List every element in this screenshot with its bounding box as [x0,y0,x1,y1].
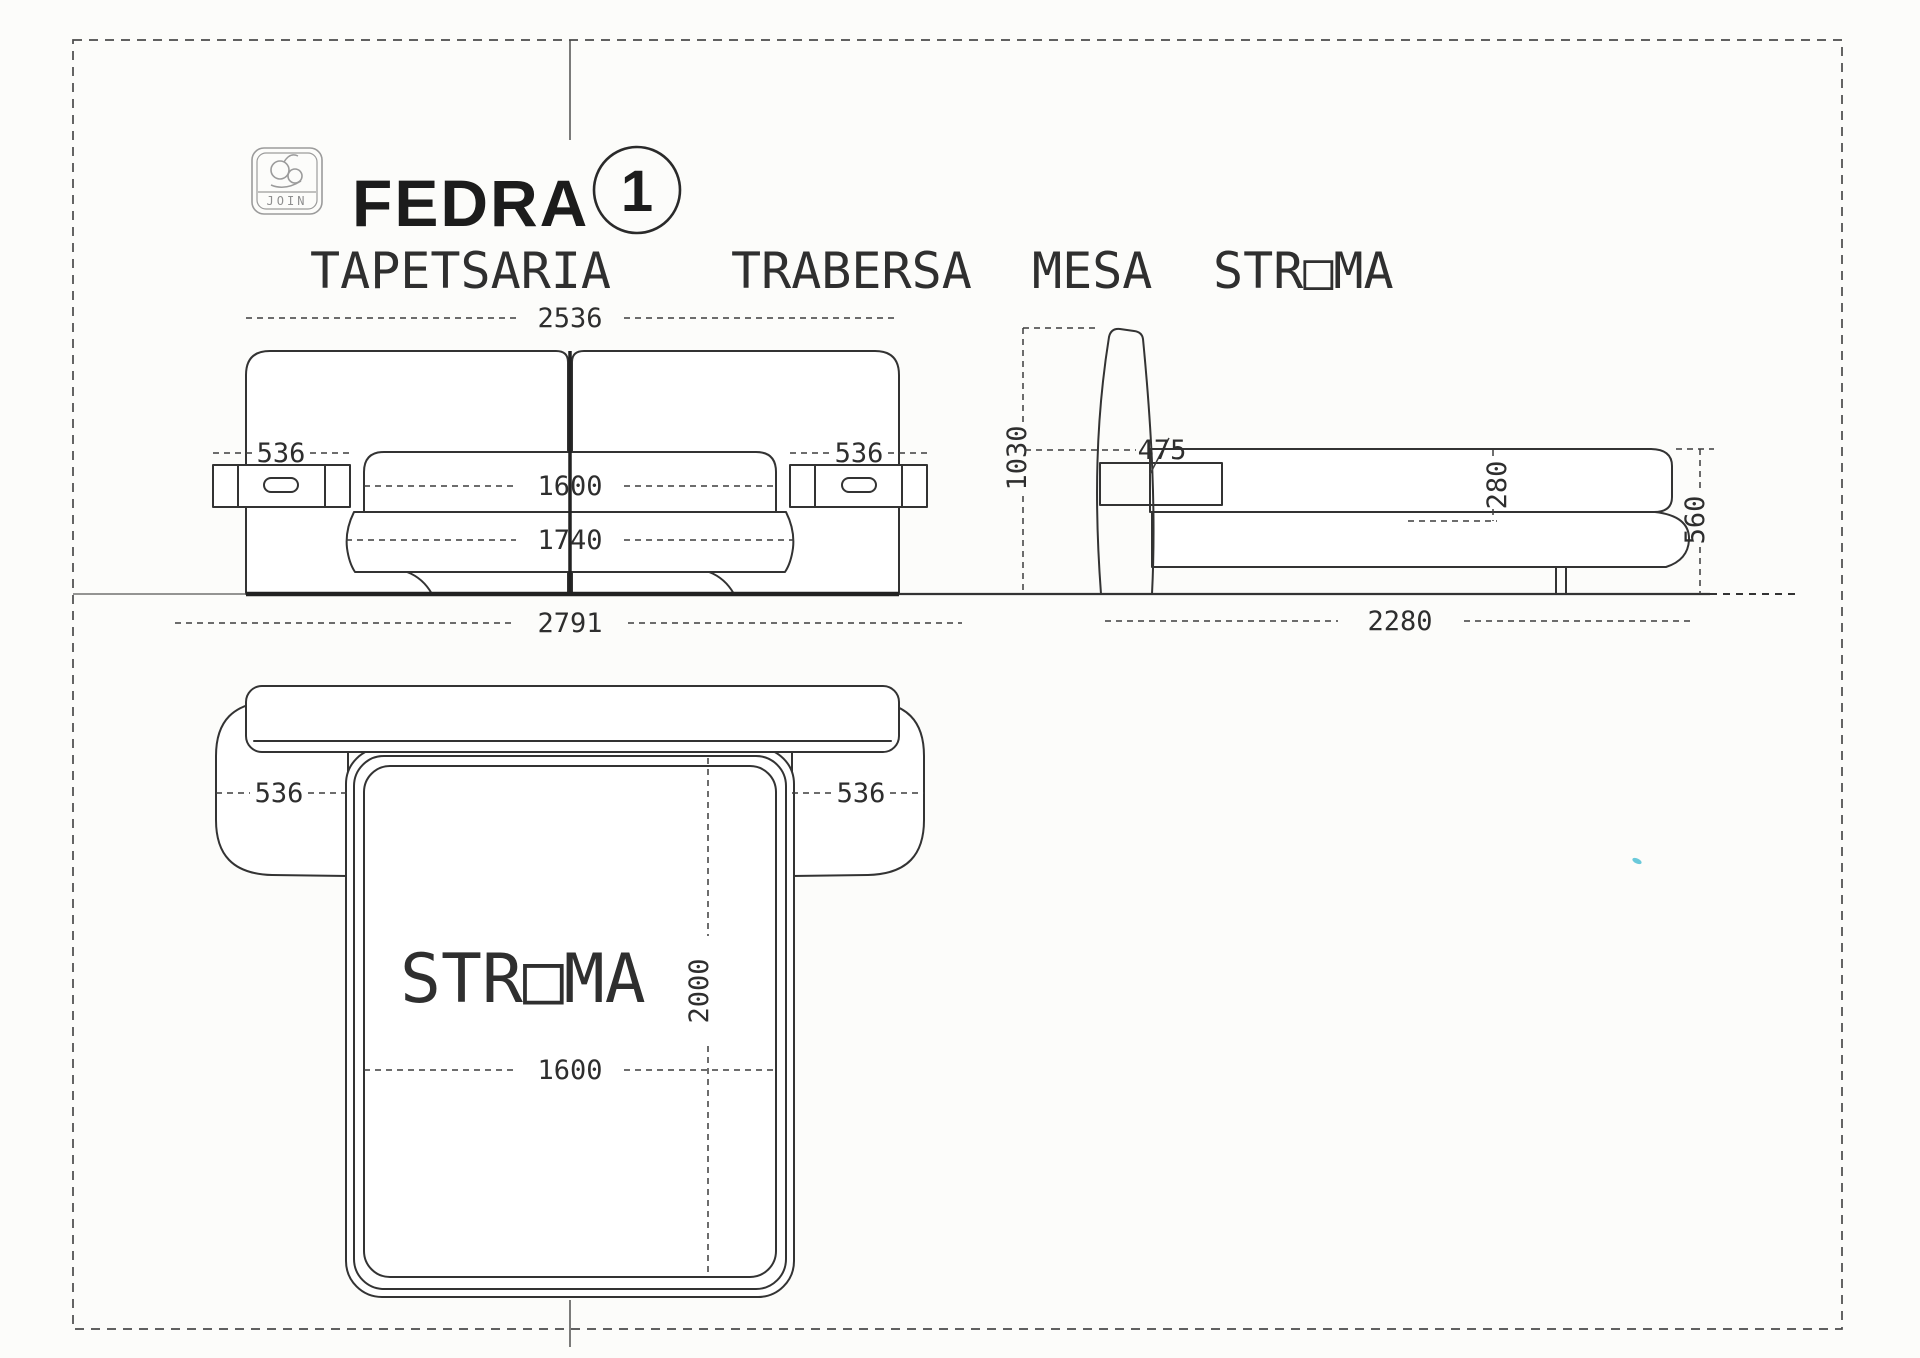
title-block: JOIN FEDRA 1 TAPETSARIA TRABERSA MESA ST… [252,147,1394,300]
dim-right-nightstand: 536 [835,438,884,469]
subtitle-word-3: MESA [1032,242,1152,300]
drawing-sheet: JOIN FEDRA 1 TAPETSARIA TRABERSA MESA ST… [0,0,1920,1358]
subtitle: TAPETSARIA TRABERSA MESA STR□MA [310,242,1394,300]
sheet-number: 1 [621,159,653,224]
sheet-border [73,40,1842,1329]
logo-brand-text: JOIN [267,194,308,208]
side-view: 1030 475 280 560 2280 [1002,328,1714,637]
subtitle-word-4: STR□MA [1213,242,1394,300]
front-view: 2536 536 536 1600 1740 2791 [175,303,962,639]
dim-total-width: 2791 [537,608,602,639]
bed-leg [1556,567,1566,594]
dim-mattress-width-plan: 1600 [537,1055,602,1086]
monogram-icon [271,155,302,187]
mattress-side [1150,449,1672,512]
plan-view: STR□MA 536 536 2000 1600 [216,686,924,1297]
dim-nightstand-depth: 475 [1138,435,1187,466]
technical-drawing: JOIN FEDRA 1 TAPETSARIA TRABERSA MESA ST… [0,0,1920,1358]
dim-right-table: 536 [837,778,886,809]
dim-bed-length: 2280 [1367,606,1432,637]
dim-headboard-height: 1030 [1002,425,1033,490]
subtitle-word-1: TAPETSARIA [310,242,611,300]
dim-left-nightstand: 536 [257,438,306,469]
dim-base-height: 560 [1680,496,1711,545]
brand-logo: JOIN [252,148,322,214]
subtitle-word-2: TRABERSA [731,242,972,300]
nightstand-right [790,465,927,507]
mattress-label: STR□MA [400,940,646,1019]
dim-base-width: 1740 [537,525,602,556]
product-title: FEDRA [352,166,589,240]
sheet-number-badge: 1 [594,147,680,233]
headboard-plan [246,686,899,752]
dim-mattress-thickness: 280 [1482,461,1513,510]
dim-left-table: 536 [255,778,304,809]
dim-overall-width: 2536 [537,303,602,334]
dim-mattress-width: 1600 [537,471,602,502]
dim-mattress-length: 2000 [684,958,715,1023]
scan-artifact-dot [1631,857,1642,866]
nightstand-left [213,465,350,507]
